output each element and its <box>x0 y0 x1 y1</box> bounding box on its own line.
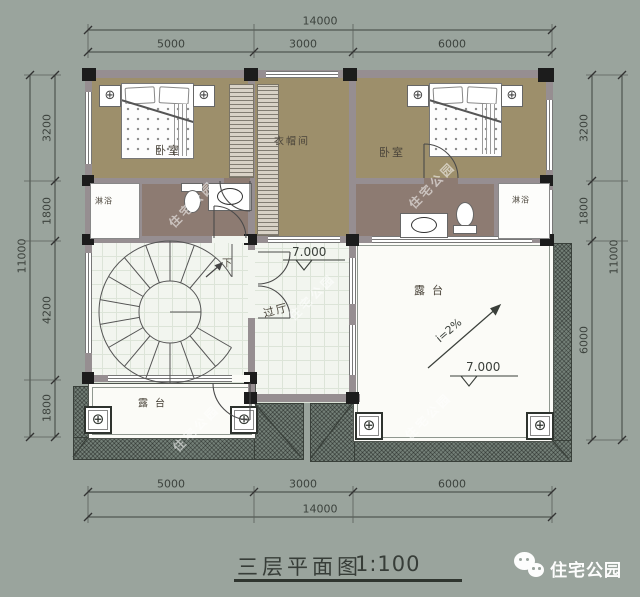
terrace-level-text: 7.000 <box>466 360 500 374</box>
closet-label: 衣帽间 <box>274 133 310 148</box>
terrace-right-label: 露台 <box>414 282 450 298</box>
dim-bottom-seg: 3000 <box>289 478 317 491</box>
dim-right-seg: 3200 <box>578 114 591 142</box>
dim-right-overall: 11000 <box>608 240 621 275</box>
hall-level-text: 7.000 <box>292 245 326 259</box>
level-marker-hall <box>283 260 345 270</box>
dim-left-seg: 4200 <box>41 296 54 324</box>
dim-left-seg: 1800 <box>41 394 54 422</box>
stairs-down-arrow <box>206 263 222 277</box>
dim-top-overall: 14000 <box>303 15 338 28</box>
stairs-down-label: 下 <box>222 255 234 270</box>
dim-top-seg: 6000 <box>438 38 466 51</box>
shower-right-label: 淋浴 <box>512 195 530 206</box>
wechat-icon <box>514 550 546 580</box>
dim-bottom-seg: 6000 <box>438 478 466 491</box>
shower-left-label: 淋浴 <box>95 196 113 207</box>
spiral-staircase <box>99 241 232 383</box>
bedroom-left-label: 卧室 <box>155 142 181 158</box>
dim-top-seg: 3000 <box>289 38 317 51</box>
roof-hip-lines <box>73 404 569 459</box>
dim-bottom-overall: 14000 <box>303 503 338 516</box>
dim-left-overall: 11000 <box>16 239 29 274</box>
dim-right-seg: 1800 <box>578 197 591 225</box>
dim-right-seg: 6000 <box>578 326 591 354</box>
dim-left-seg: 1800 <box>41 197 54 225</box>
logo-text: 住宅公园 <box>550 556 622 581</box>
title-underline <box>234 579 462 582</box>
dim-left-seg: 3200 <box>41 114 54 142</box>
floor-plan-canvas: ⊕ ⊕ ⊕ ⊕ ⊕ ⊕ ⊕ ⊕ <box>0 0 640 597</box>
terrace-bottom-left-label: 露台 <box>138 395 172 410</box>
plan-scale: 1:100 <box>355 552 421 576</box>
bedroom-right-label: 卧室 <box>379 144 405 160</box>
dim-top-seg: 5000 <box>157 38 185 51</box>
plan-title: 三层平面图 <box>237 551 362 581</box>
dim-bottom-seg: 5000 <box>157 478 185 491</box>
level-marker-terrace <box>450 376 518 386</box>
